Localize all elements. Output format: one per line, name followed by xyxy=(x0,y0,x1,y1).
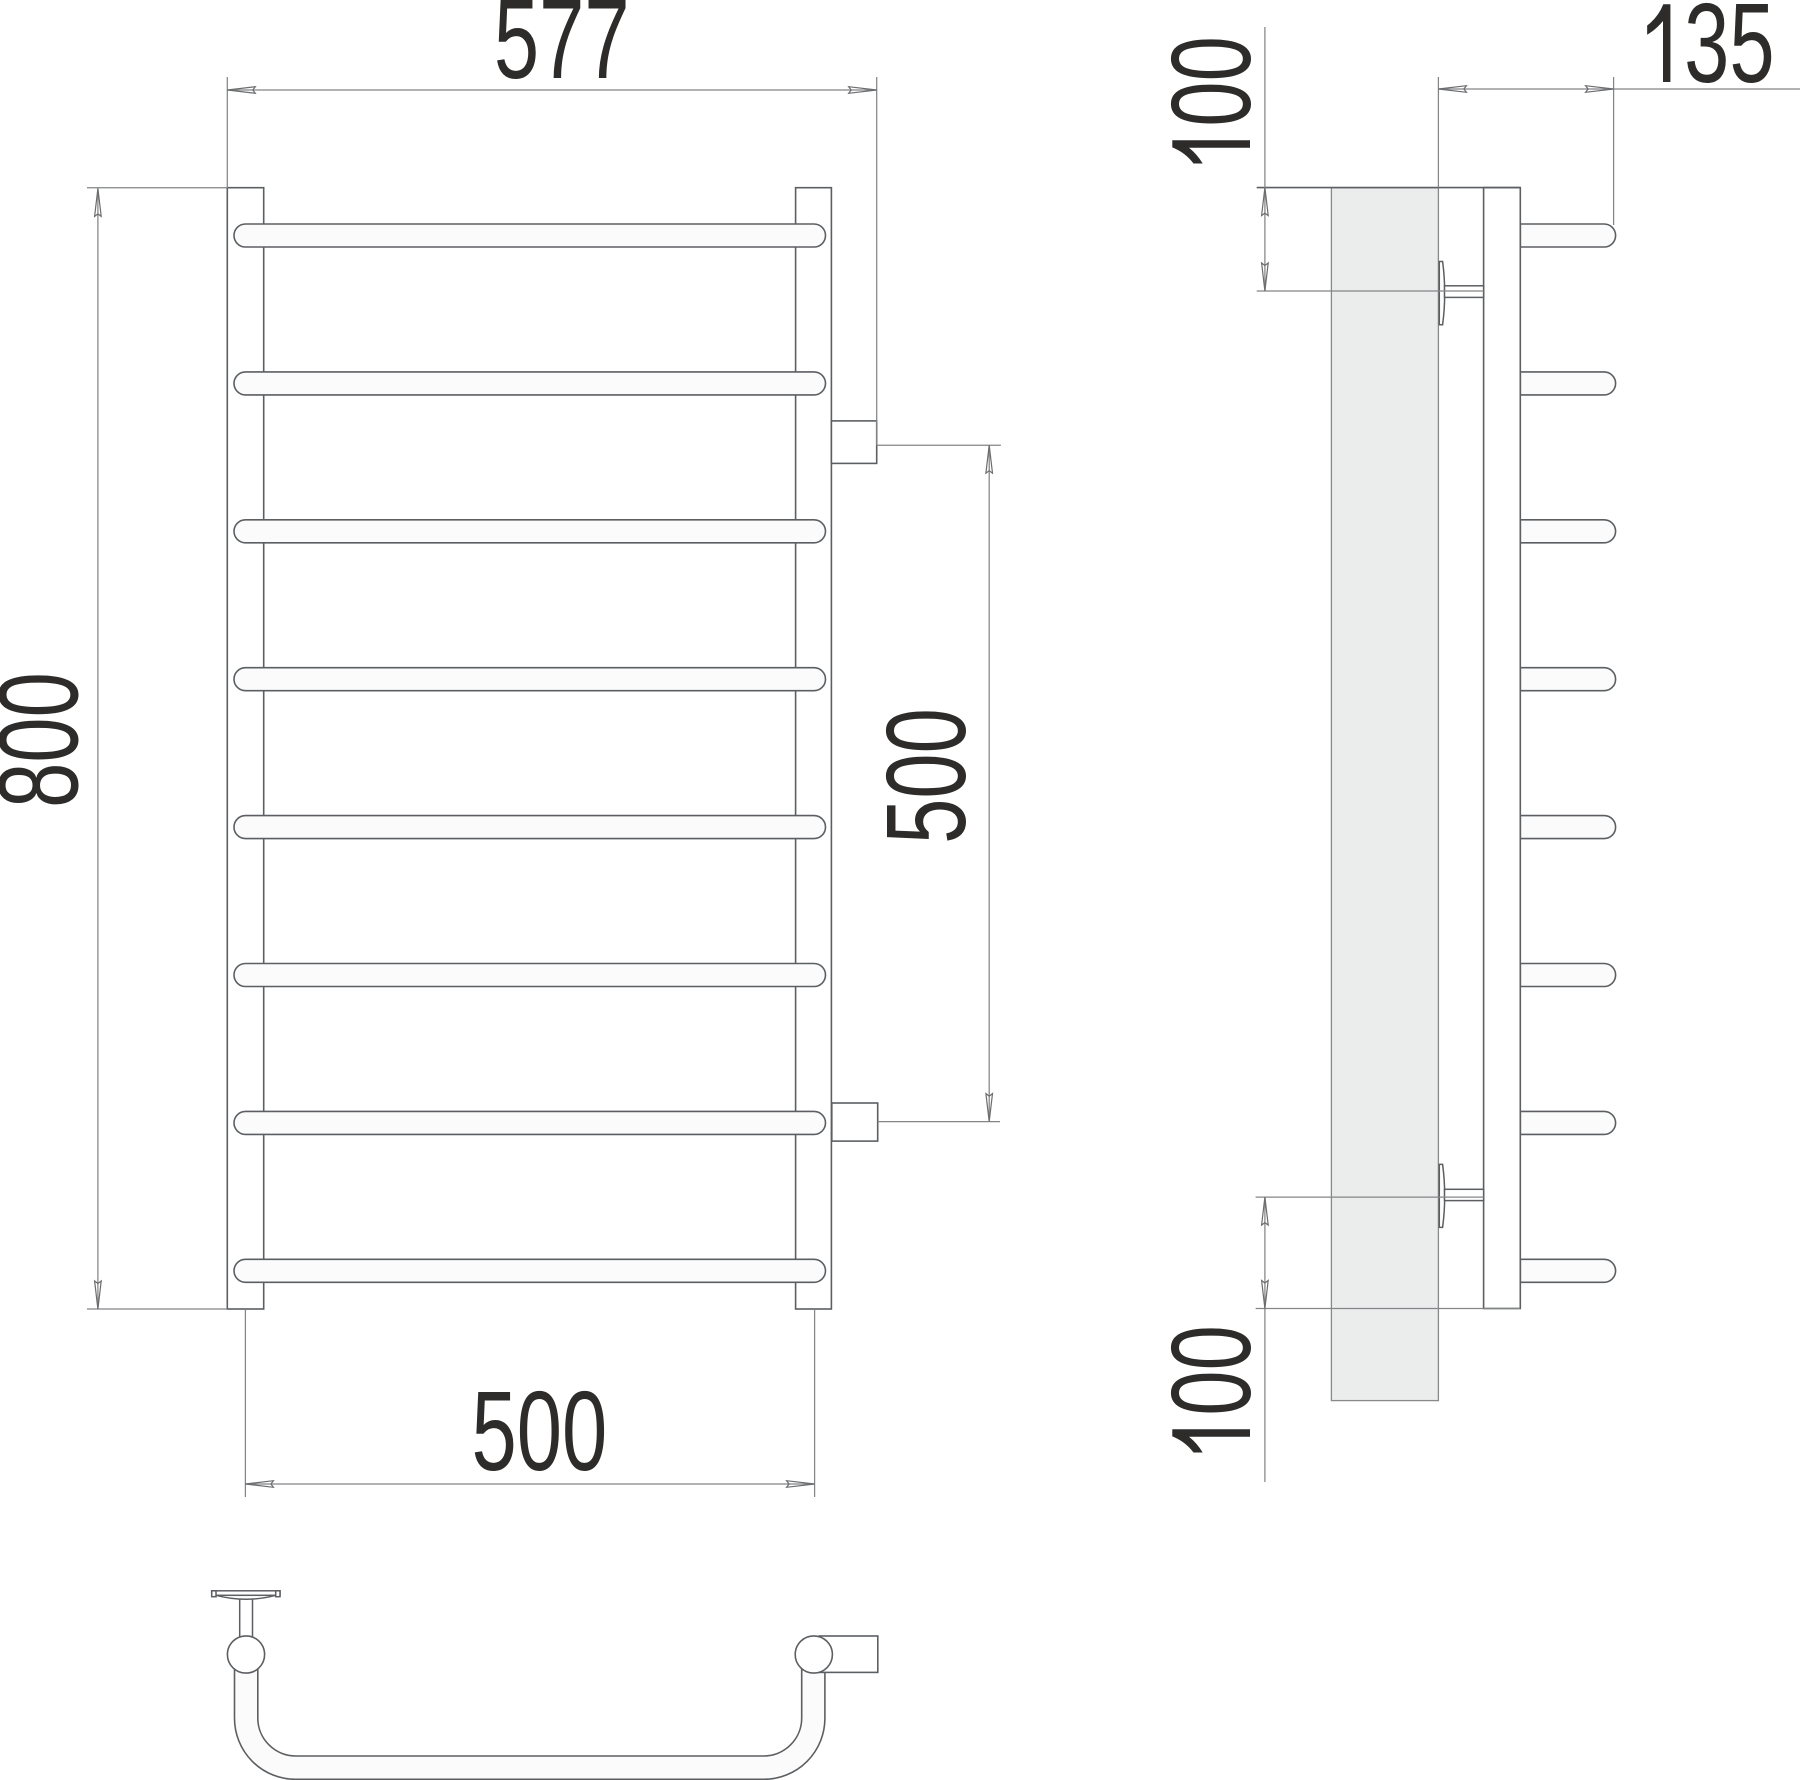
svg-text:00: 00 xyxy=(1148,1325,1274,1415)
svg-text:800: 800 xyxy=(0,672,102,808)
svg-text:500: 500 xyxy=(863,708,989,844)
svg-text:35: 35 xyxy=(1684,0,1774,106)
svg-text:00: 00 xyxy=(1148,36,1274,126)
svg-text:577: 577 xyxy=(494,0,630,102)
svg-text:500: 500 xyxy=(472,1368,608,1494)
